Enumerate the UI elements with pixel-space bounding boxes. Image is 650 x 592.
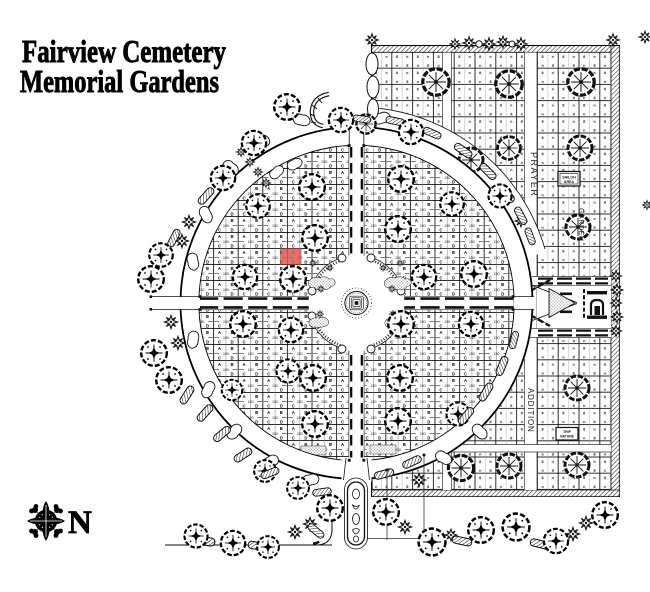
svg-text:NATURE: NATURE — [560, 435, 575, 439]
svg-text:PRAYER: PRAYER — [529, 152, 539, 197]
svg-text:GARDEN: GARDEN — [577, 208, 584, 242]
svg-text:Memorial Gardens: Memorial Gardens — [20, 63, 219, 99]
svg-text:ADDITION: ADDITION — [526, 388, 535, 433]
svg-text:AREA: AREA — [564, 180, 575, 184]
svg-text:N: N — [68, 505, 92, 541]
svg-text:TRIP: TRIP — [563, 430, 571, 434]
